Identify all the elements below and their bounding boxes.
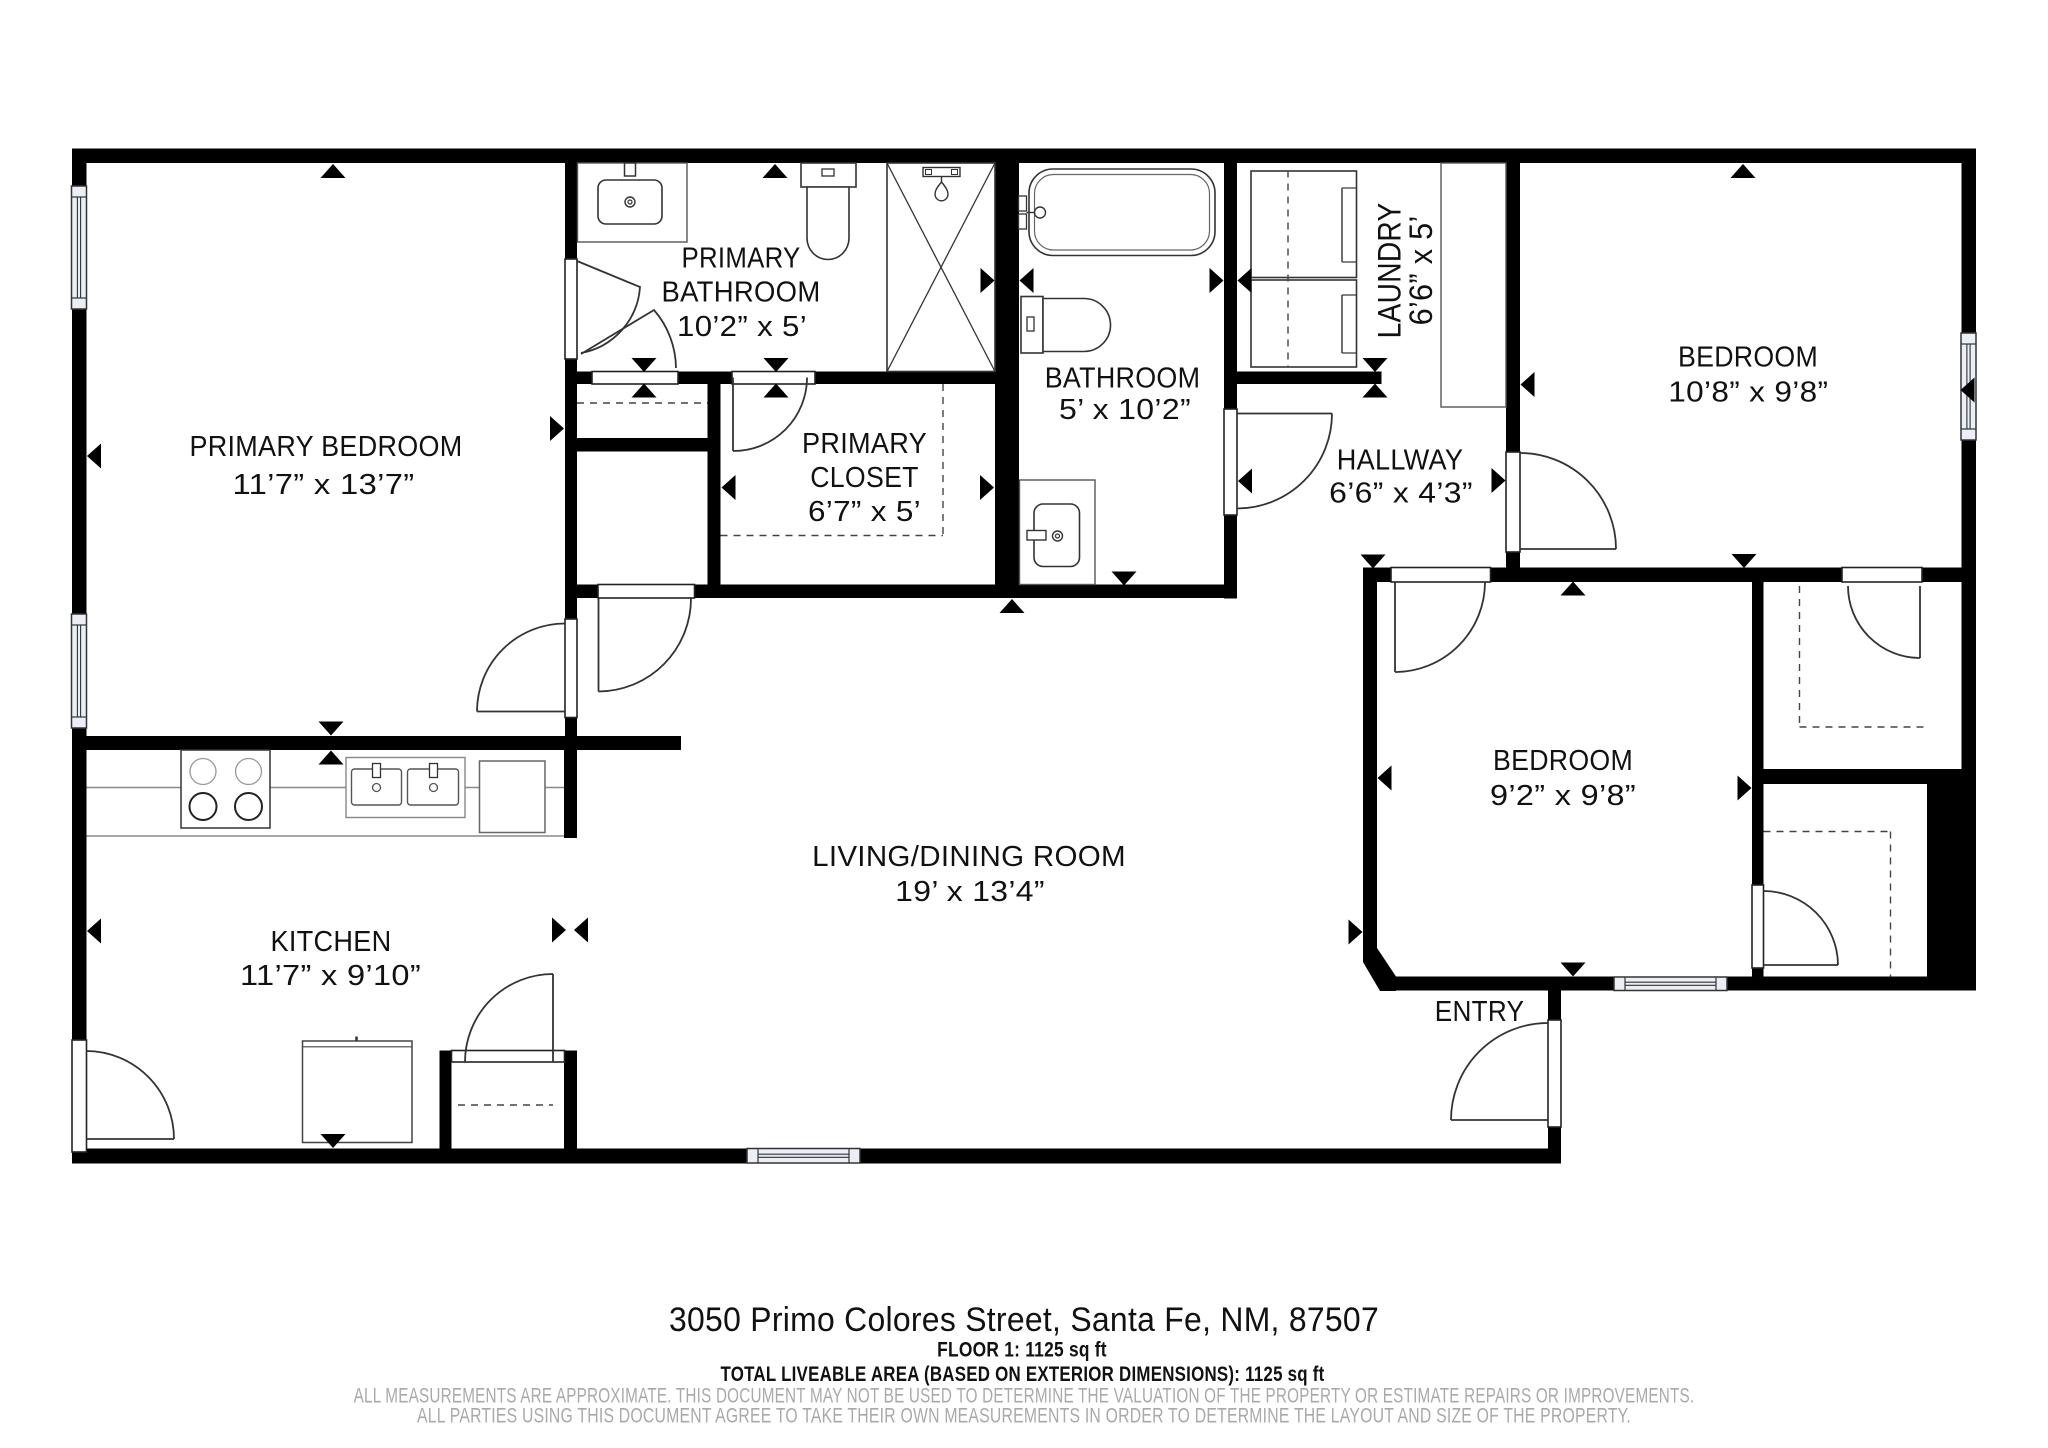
svg-text:11’7” x 9’10”: 11’7” x 9’10” xyxy=(240,960,421,992)
svg-text:3050 Primo Colores Street, San: 3050 Primo Colores Street, Santa Fe, NM,… xyxy=(669,1301,1379,1339)
svg-text:TOTAL LIVEABLE AREA (BASED ON: TOTAL LIVEABLE AREA (BASED ON EXTERIOR D… xyxy=(721,1363,1325,1386)
svg-text:ENTRY: ENTRY xyxy=(1435,996,1525,1028)
svg-text:HALLWAY: HALLWAY xyxy=(1337,445,1464,477)
svg-text:PRIMARY BEDROOM: PRIMARY BEDROOM xyxy=(190,431,463,463)
svg-text:10’2” x 5’: 10’2” x 5’ xyxy=(677,311,807,343)
svg-text:PRIMARY: PRIMARY xyxy=(682,243,801,275)
svg-text:PRIMARY: PRIMARY xyxy=(802,428,927,460)
svg-text:10’8” x 9’8”: 10’8” x 9’8” xyxy=(1668,377,1828,409)
svg-text:6’7” x 5’: 6’7” x 5’ xyxy=(808,496,921,528)
svg-text:9’2” x 9’8”: 9’2” x 9’8” xyxy=(1490,780,1636,812)
svg-text:6’6” x 5’: 6’6” x 5’ xyxy=(1403,215,1439,325)
svg-text:5’ x 10’2”: 5’ x 10’2” xyxy=(1059,394,1191,426)
svg-text:BATHROOM: BATHROOM xyxy=(1045,363,1201,395)
svg-text:BEDROOM: BEDROOM xyxy=(1678,342,1818,374)
svg-text:FLOOR 1: 1125 sq ft: FLOOR 1: 1125 sq ft xyxy=(937,1339,1107,1362)
svg-text:6’6” x 4’3”: 6’6” x 4’3” xyxy=(1329,478,1473,510)
svg-text:KITCHEN: KITCHEN xyxy=(271,926,392,958)
svg-text:BEDROOM: BEDROOM xyxy=(1493,745,1633,777)
svg-text:11’7” x 13’7”: 11’7” x 13’7” xyxy=(233,469,415,501)
svg-text:CLOSET: CLOSET xyxy=(810,462,919,494)
svg-text:ALL PARTIES USING THIS DOCUMEN: ALL PARTIES USING THIS DOCUMENT AGREE TO… xyxy=(417,1405,1631,1428)
svg-text:LIVING/DINING ROOM: LIVING/DINING ROOM xyxy=(812,841,1126,873)
svg-text:19’ x 13’4”: 19’ x 13’4” xyxy=(895,876,1045,908)
svg-text:BATHROOM: BATHROOM xyxy=(662,277,821,309)
